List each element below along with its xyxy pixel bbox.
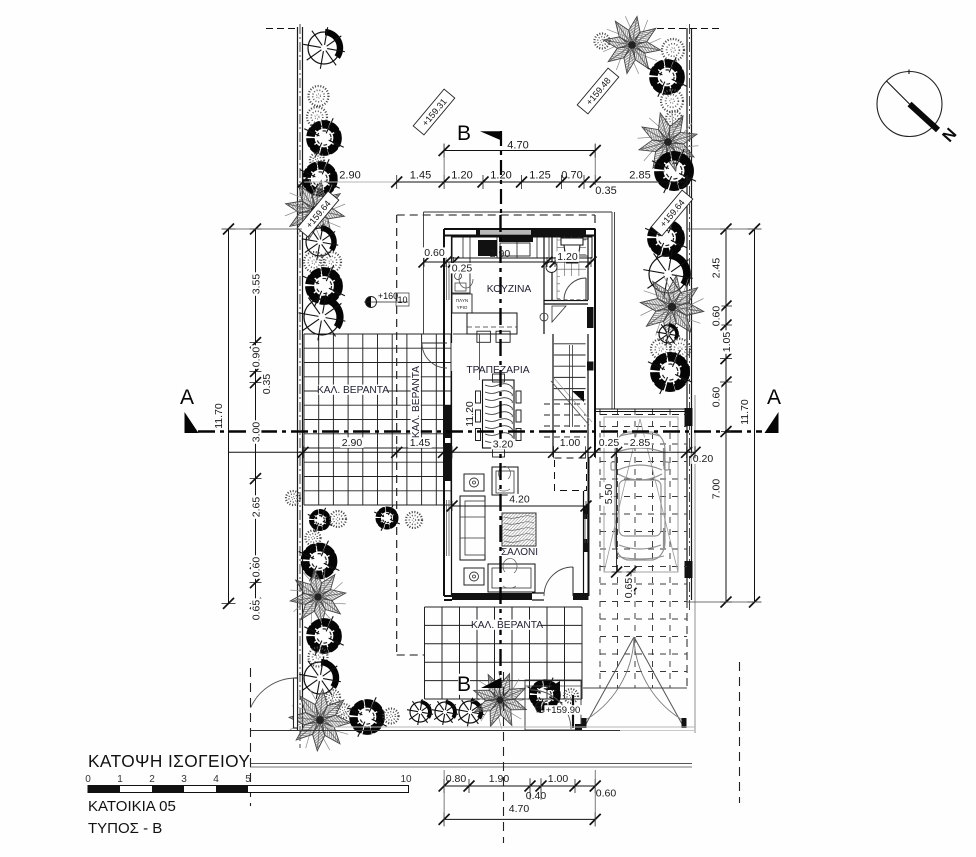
svg-text:5.50: 5.50 (603, 484, 615, 505)
svg-text:0.60: 0.60 (251, 557, 263, 578)
svg-text:1.90: 1.90 (489, 773, 510, 785)
svg-text:+160: +160 (378, 291, 398, 301)
svg-text:B: B (457, 673, 471, 696)
svg-text:0.25: 0.25 (452, 263, 473, 275)
svg-text:+159.90: +159.90 (546, 705, 581, 716)
svg-text:0.35: 0.35 (595, 185, 616, 197)
svg-text:ΠΛΥΝ: ΠΛΥΝ (456, 298, 468, 303)
svg-text:2.90: 2.90 (339, 170, 360, 182)
svg-text:2.65: 2.65 (251, 497, 263, 518)
svg-text:0.25: 0.25 (599, 437, 620, 449)
svg-text:1.20: 1.20 (451, 170, 472, 182)
svg-text:7.00: 7.00 (711, 479, 723, 500)
svg-text:2.90: 2.90 (490, 248, 511, 260)
svg-text:ΚΑΛ. ΒΕΡΑΝΤΑ: ΚΑΛ. ΒΕΡΑΝΤΑ (317, 385, 389, 396)
svg-text:0.60: 0.60 (424, 247, 445, 259)
svg-text:0.60: 0.60 (711, 306, 723, 327)
svg-text:ΤΡΑΠΕΖΑΡΙΑ: ΤΡΑΠΕΖΑΡΙΑ (466, 365, 529, 376)
svg-text:1: 1 (117, 774, 123, 785)
svg-text:5: 5 (245, 774, 251, 785)
svg-text:2: 2 (149, 774, 155, 785)
svg-text:ΚΑΛ. ΒΕΡΑΝΤΑ: ΚΑΛ. ΒΕΡΑΝΤΑ (471, 620, 543, 631)
svg-text:4.70: 4.70 (509, 803, 530, 815)
svg-text:B: B (457, 122, 471, 145)
svg-text:ΚΑΤΟΙΚΙΑ 05: ΚΑΤΟΙΚΙΑ 05 (88, 798, 176, 815)
svg-text:ΣΑΛΟΝΙ: ΣΑΛΟΝΙ (501, 547, 538, 558)
svg-text:0.40: 0.40 (526, 790, 547, 802)
svg-text:0.80: 0.80 (446, 773, 467, 785)
svg-text:10: 10 (397, 295, 407, 305)
svg-text:0.20: 0.20 (693, 453, 714, 465)
svg-text:0: 0 (85, 774, 91, 785)
svg-text:1.20: 1.20 (557, 251, 578, 263)
svg-text:3.00: 3.00 (251, 422, 263, 443)
svg-text:0.65: 0.65 (251, 600, 263, 621)
svg-text:4.20: 4.20 (509, 494, 530, 506)
svg-text:ΚΟΥΖΙΝΑ: ΚΟΥΖΙΝΑ (487, 284, 532, 295)
svg-text:4.70: 4.70 (507, 140, 528, 152)
svg-text:11.70: 11.70 (739, 399, 751, 425)
svg-text:ΚΑΤΟΨΗ ΙΣΟΓΕΙΟΥ: ΚΑΤΟΨΗ ΙΣΟΓΕΙΟΥ (88, 751, 250, 771)
svg-text:1.00: 1.00 (548, 773, 569, 785)
svg-text:ΤΥΠΟΣ - Β: ΤΥΠΟΣ - Β (88, 820, 162, 837)
svg-text:A: A (180, 386, 194, 409)
svg-text:ΚΑΛ. ΒΕΡΑΝΤΑ: ΚΑΛ. ΒΕΡΑΝΤΑ (411, 366, 422, 438)
svg-text:1.25: 1.25 (529, 170, 550, 182)
svg-text:0.65: 0.65 (623, 578, 635, 599)
svg-text:4: 4 (213, 774, 219, 785)
svg-text:1.00: 1.00 (560, 437, 581, 449)
svg-text:1.45: 1.45 (410, 170, 431, 182)
svg-text:2.45: 2.45 (711, 258, 723, 279)
svg-text:3: 3 (181, 774, 187, 785)
svg-text:3.20: 3.20 (493, 439, 514, 451)
svg-text:2.85: 2.85 (630, 437, 651, 449)
svg-text:0.60: 0.60 (596, 788, 617, 800)
svg-text:1.05: 1.05 (721, 332, 733, 353)
svg-text:ΥΡΙΟ: ΥΡΙΟ (457, 305, 468, 310)
svg-text:0.70: 0.70 (561, 170, 582, 182)
svg-text:2.90: 2.90 (342, 437, 363, 449)
svg-text:11.20: 11.20 (464, 401, 476, 427)
svg-text:3.55: 3.55 (251, 274, 263, 295)
svg-text:0.90: 0.90 (251, 347, 263, 368)
svg-text:0.60: 0.60 (711, 387, 723, 408)
svg-text:11.70: 11.70 (213, 403, 225, 429)
svg-text:1.20: 1.20 (490, 170, 511, 182)
svg-text:10: 10 (400, 774, 412, 785)
svg-text:A: A (767, 386, 781, 409)
svg-text:2.85: 2.85 (629, 170, 650, 182)
svg-text:0.35: 0.35 (261, 374, 273, 395)
